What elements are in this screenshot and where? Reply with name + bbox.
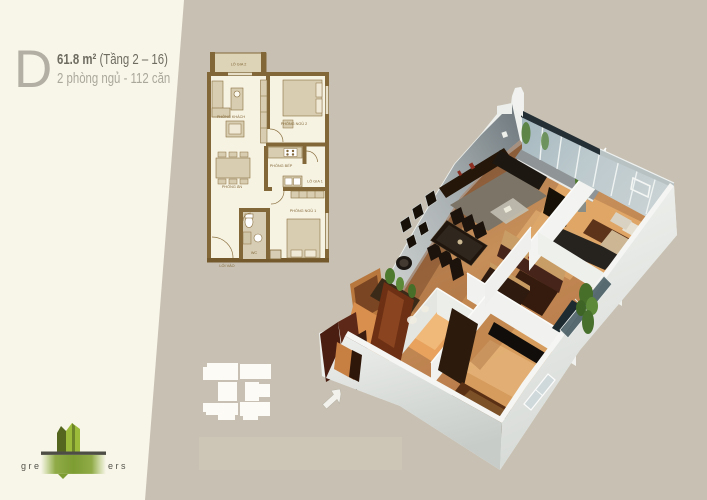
svg-text:LÔ GIA 1: LÔ GIA 1 [307,179,323,184]
svg-text:PHÒNG NGỦ 1: PHÒNG NGỦ 1 [290,208,317,213]
svg-text:PHÒNG ĂN: PHÒNG ĂN [222,184,243,189]
svg-text:LÔ GIA 2: LÔ GIA 2 [231,62,247,67]
svg-text:PHÒNG NGỦ 2: PHÒNG NGỦ 2 [281,121,308,126]
svg-text:PHÒNG BẾP: PHÒNG BẾP [270,163,293,168]
svg-text:PHÒNG KHÁCH: PHÒNG KHÁCH [217,114,246,119]
svg-text:WC: WC [251,251,258,255]
svg-text:LỐI VÀO: LỐI VÀO [219,263,234,268]
